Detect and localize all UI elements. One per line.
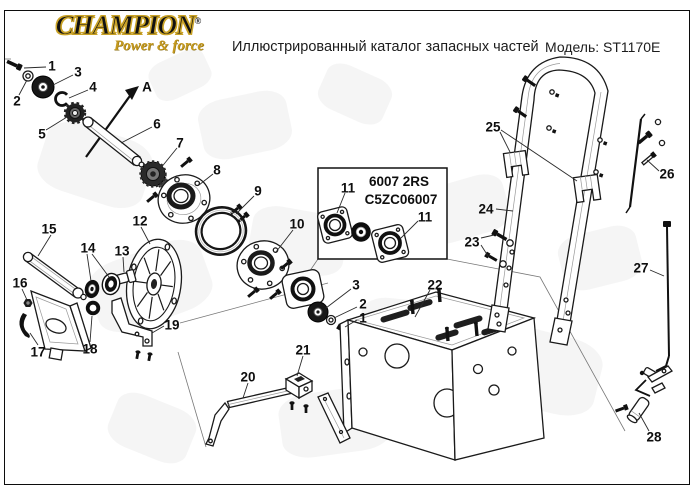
callout-26-26: 26 — [659, 167, 675, 182]
callout-13-13: 13 — [114, 244, 130, 259]
callout-2-30: 2 — [359, 297, 367, 312]
part-pulley-3b — [308, 302, 328, 322]
callout-28-28: 28 — [646, 430, 662, 445]
part-bearing-flange-11b — [371, 224, 410, 264]
catalog-page: { "header": { "brand_name": "CHAMPION", … — [0, 0, 700, 493]
callout-25-25: 25 — [485, 120, 501, 135]
callout-7-6: 7 — [176, 136, 184, 151]
part-ball-bearing-11 — [351, 222, 371, 242]
callout-23-23: 23 — [464, 235, 480, 250]
part-lever-rod-26 — [626, 114, 665, 213]
part-link-assembly-28 — [615, 366, 672, 424]
callout-12-12: 12 — [132, 214, 147, 229]
part-bolt-1 — [6, 58, 23, 71]
part-frame-housing-22 — [318, 288, 544, 460]
exploded-parts-diagram: 6007 2RS C5ZC06007 — [0, 0, 700, 493]
callout-16-16: 16 — [12, 276, 28, 291]
callout-22-22: 22 — [427, 278, 442, 293]
part-gear-7 — [141, 162, 168, 188]
callout-20-20: 20 — [240, 370, 255, 385]
bearing-code-line1: 6007 2RS — [369, 174, 429, 189]
page-title: Иллюстрированный каталог запасных частей — [232, 39, 539, 55]
part-spring-clip-17 — [19, 313, 29, 338]
part-bushing-18 — [86, 301, 100, 315]
part-shift-rod-20 — [206, 386, 300, 446]
callout-3-2: 3 — [74, 65, 82, 80]
brand-name: CHAMPION® — [52, 12, 204, 39]
part-nut-16 — [23, 299, 32, 307]
callout-27-27: 27 — [633, 261, 648, 276]
callout-24-24: 24 — [478, 202, 494, 217]
callout-19-19: 19 — [164, 318, 179, 333]
callout-6-5: 6 — [153, 117, 161, 132]
callout-17-17: 17 — [30, 345, 45, 360]
part-handlebar-24 — [488, 57, 608, 345]
callout-15-15: 15 — [41, 222, 57, 237]
callout-14-14: 14 — [80, 241, 96, 256]
callout-4-3: 4 — [89, 80, 97, 95]
part-shaft-6 — [83, 117, 144, 167]
callout-8-7: 8 — [213, 163, 221, 178]
callout-21-21: 21 — [295, 343, 311, 358]
part-control-rod-27 — [643, 221, 671, 379]
bearing-code-line2: C5ZC06007 — [365, 192, 438, 207]
registered-mark-icon: ® — [195, 16, 201, 26]
callout-10-9: 10 — [289, 217, 304, 232]
callout-11-11: 11 — [418, 210, 433, 225]
part-flange-nut-2 — [23, 71, 33, 81]
callout-11-10: 11 — [341, 181, 356, 196]
model-label: Модель: ST1170E — [545, 39, 660, 55]
part-washer-2b — [327, 316, 336, 325]
callout-5-4: 5 — [38, 127, 46, 142]
brand-logo: CHAMPION® Power & force — [52, 12, 204, 54]
part-sprocket-5 — [66, 104, 85, 123]
callout-2-1: 2 — [13, 94, 21, 109]
callout-18-18: 18 — [82, 342, 98, 357]
callout-3-29: 3 — [352, 278, 360, 293]
part-bracket-21 — [286, 373, 312, 413]
callout-9-8: 9 — [254, 184, 262, 199]
part-pulley-3 — [32, 76, 54, 98]
callout-1-0: 1 — [48, 59, 56, 74]
callout-1-31: 1 — [359, 311, 367, 326]
brand-tagline: Power & force — [52, 39, 204, 54]
callout-A-32: A — [142, 80, 152, 95]
part-circlip-4 — [56, 93, 67, 106]
